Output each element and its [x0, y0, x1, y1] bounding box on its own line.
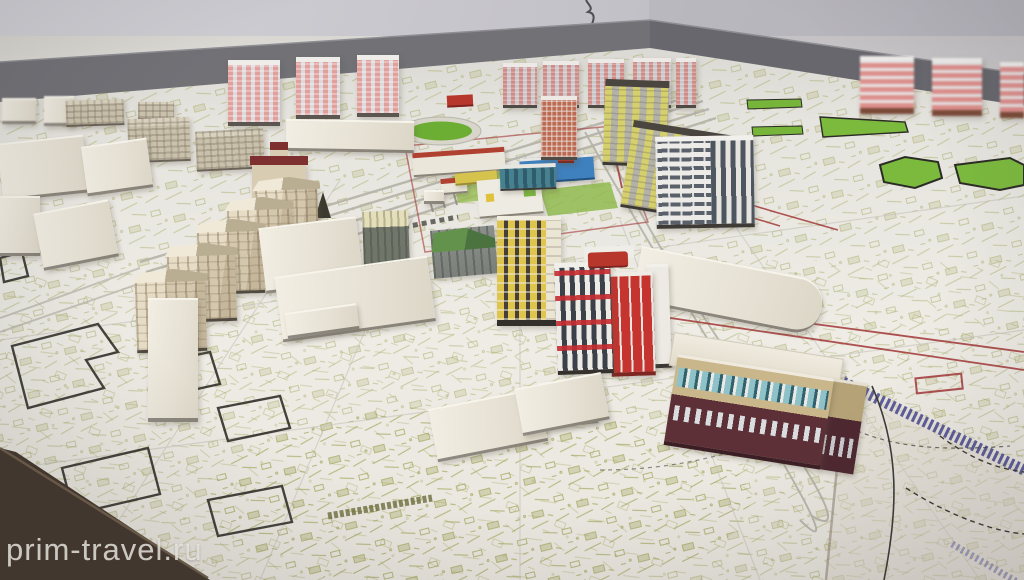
green-roof-house	[430, 225, 498, 278]
teal-building	[500, 163, 557, 191]
mall-upper-window-strip	[676, 368, 829, 410]
back-tower-1	[503, 63, 537, 108]
pink-tower-right-1	[860, 56, 914, 114]
mall-lower-window-strip	[672, 405, 821, 443]
green-gable-roof	[430, 225, 496, 253]
office-window-rows	[655, 141, 711, 225]
photo-architectural-model: prim-travel.ru	[0, 0, 1024, 580]
pink-tower-left-2	[296, 57, 340, 119]
far-white-house	[2, 98, 36, 124]
white-slab-long	[286, 119, 415, 153]
yellow-balcony-tower	[497, 216, 561, 326]
wall-cable	[586, 0, 594, 26]
striped-building-white-part	[554, 261, 614, 375]
pink-tower-left-3	[357, 55, 399, 117]
white-slab	[0, 196, 40, 256]
back-tower-5	[676, 58, 696, 108]
small-red-structure	[447, 94, 474, 107]
stadium-oval	[410, 122, 472, 141]
white-slab	[0, 135, 89, 202]
striped-building-red-part	[608, 271, 656, 376]
striped-building-roof-red-box	[588, 251, 629, 268]
beige-lowrise	[66, 99, 125, 127]
red-frame-tower	[541, 96, 577, 160]
pink-tower-left-1	[228, 60, 280, 126]
office-tower	[655, 135, 755, 229]
school-white-box	[424, 190, 444, 204]
white-slab	[81, 138, 153, 197]
white-tower-bottom-left	[148, 298, 198, 422]
pink-tower-right-2	[932, 58, 982, 116]
pink-tower-right-3	[1000, 62, 1024, 118]
office-window-columns	[710, 140, 755, 224]
watermark: prim-travel.ru	[6, 532, 203, 568]
